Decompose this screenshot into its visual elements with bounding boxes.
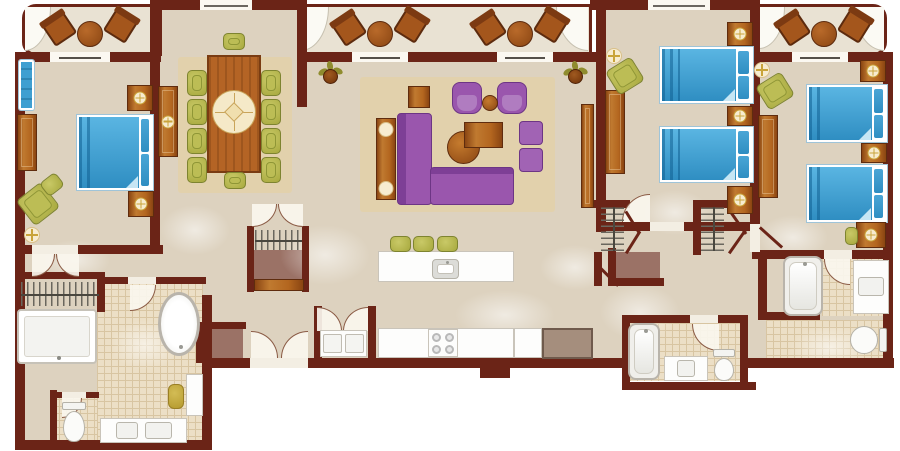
wall xyxy=(622,382,756,390)
nightstand xyxy=(727,186,753,214)
door-opening xyxy=(32,245,78,254)
washer-dryer xyxy=(320,330,367,357)
patio-set xyxy=(44,10,136,50)
closet-rod xyxy=(255,230,302,250)
floor-lamp xyxy=(754,62,770,78)
balcony-slider xyxy=(352,52,408,62)
armchair-purple xyxy=(452,82,482,114)
window xyxy=(648,0,710,10)
dining-chair xyxy=(261,128,281,154)
wood-table xyxy=(464,122,503,148)
nightstand xyxy=(861,143,887,163)
floor-light xyxy=(160,205,230,255)
closet-rod xyxy=(21,282,99,306)
wall xyxy=(758,259,767,314)
media-console xyxy=(581,104,594,208)
queen-bed xyxy=(807,85,887,142)
nightstand xyxy=(727,106,753,126)
towel-cabinet xyxy=(186,374,203,416)
vanity-cabinet xyxy=(856,222,886,248)
entry-door-opening xyxy=(250,358,308,368)
toilet xyxy=(850,326,887,354)
armchair-purple xyxy=(497,82,527,114)
dining-chair xyxy=(187,99,207,125)
closet-rod xyxy=(601,207,624,251)
shower xyxy=(17,309,97,364)
double-vanity xyxy=(100,418,187,443)
closet-shelf xyxy=(254,279,304,291)
potted-plant xyxy=(565,66,586,87)
bar-stool xyxy=(437,236,458,252)
dining-chair xyxy=(223,33,245,50)
queen-bed xyxy=(660,127,753,182)
queen-bed xyxy=(660,47,753,103)
nightstand xyxy=(860,60,886,82)
door-opening xyxy=(128,277,156,284)
nightstand xyxy=(127,85,153,111)
wall xyxy=(368,306,376,358)
nightstand xyxy=(727,22,753,46)
dining-buffet xyxy=(158,86,178,157)
patio-set xyxy=(778,10,870,50)
wall xyxy=(622,315,748,323)
door-opening xyxy=(824,250,852,259)
king-bed xyxy=(77,115,153,190)
wall xyxy=(50,390,57,450)
soaking-tub xyxy=(158,292,200,356)
balcony-slider xyxy=(50,52,110,62)
window xyxy=(200,0,252,10)
dining-chair xyxy=(224,172,246,189)
ottoman-purple xyxy=(519,148,543,172)
bedroom3-dresser xyxy=(605,90,625,174)
bathtub xyxy=(783,256,823,316)
dining-chair xyxy=(261,99,281,125)
dining-chair xyxy=(261,157,281,183)
kitchen-cabinet xyxy=(514,328,542,358)
floor-lamp xyxy=(24,227,40,243)
closet-rod xyxy=(701,207,724,251)
bath-bench xyxy=(168,384,184,409)
wall xyxy=(202,295,212,450)
dining-chair xyxy=(187,128,207,154)
console-table-lamps xyxy=(376,118,396,200)
wall xyxy=(752,250,893,259)
stove-cooktop xyxy=(428,329,458,357)
refrigerator xyxy=(542,328,593,359)
wall xyxy=(748,358,894,368)
floor-plan xyxy=(0,0,900,451)
bedroom1-dresser xyxy=(17,114,37,171)
patio-set xyxy=(334,10,426,50)
vanity-sink xyxy=(853,260,889,314)
side-table xyxy=(408,86,430,108)
bedroom4-dresser xyxy=(758,115,778,198)
round-side-table xyxy=(482,95,498,111)
wall xyxy=(480,366,510,378)
vanity-stool xyxy=(845,227,858,245)
bedroom1-bench xyxy=(19,60,34,110)
door-opening xyxy=(650,222,684,231)
patio-set xyxy=(474,10,566,50)
nightstand xyxy=(128,191,154,217)
toilet xyxy=(711,349,737,381)
dining-chair xyxy=(187,157,207,183)
wall xyxy=(247,226,254,292)
ottoman-purple xyxy=(519,121,543,145)
door-opening xyxy=(690,315,718,323)
wall xyxy=(15,272,101,279)
vanity-sink xyxy=(664,356,708,381)
dining-chair xyxy=(261,70,281,96)
queen-bed xyxy=(807,165,887,222)
potted-plant xyxy=(320,66,341,87)
bar-stool xyxy=(390,236,411,252)
balcony-slider xyxy=(497,52,553,62)
bathtub xyxy=(628,323,660,380)
wall xyxy=(196,322,246,329)
bar-stool xyxy=(413,236,434,252)
island-sink xyxy=(432,259,459,279)
wall xyxy=(740,315,748,390)
lazy-susan xyxy=(212,90,256,134)
toilet xyxy=(60,402,88,442)
dining-chair xyxy=(187,70,207,96)
balcony-slider xyxy=(792,52,848,62)
closet-floor xyxy=(616,252,660,278)
